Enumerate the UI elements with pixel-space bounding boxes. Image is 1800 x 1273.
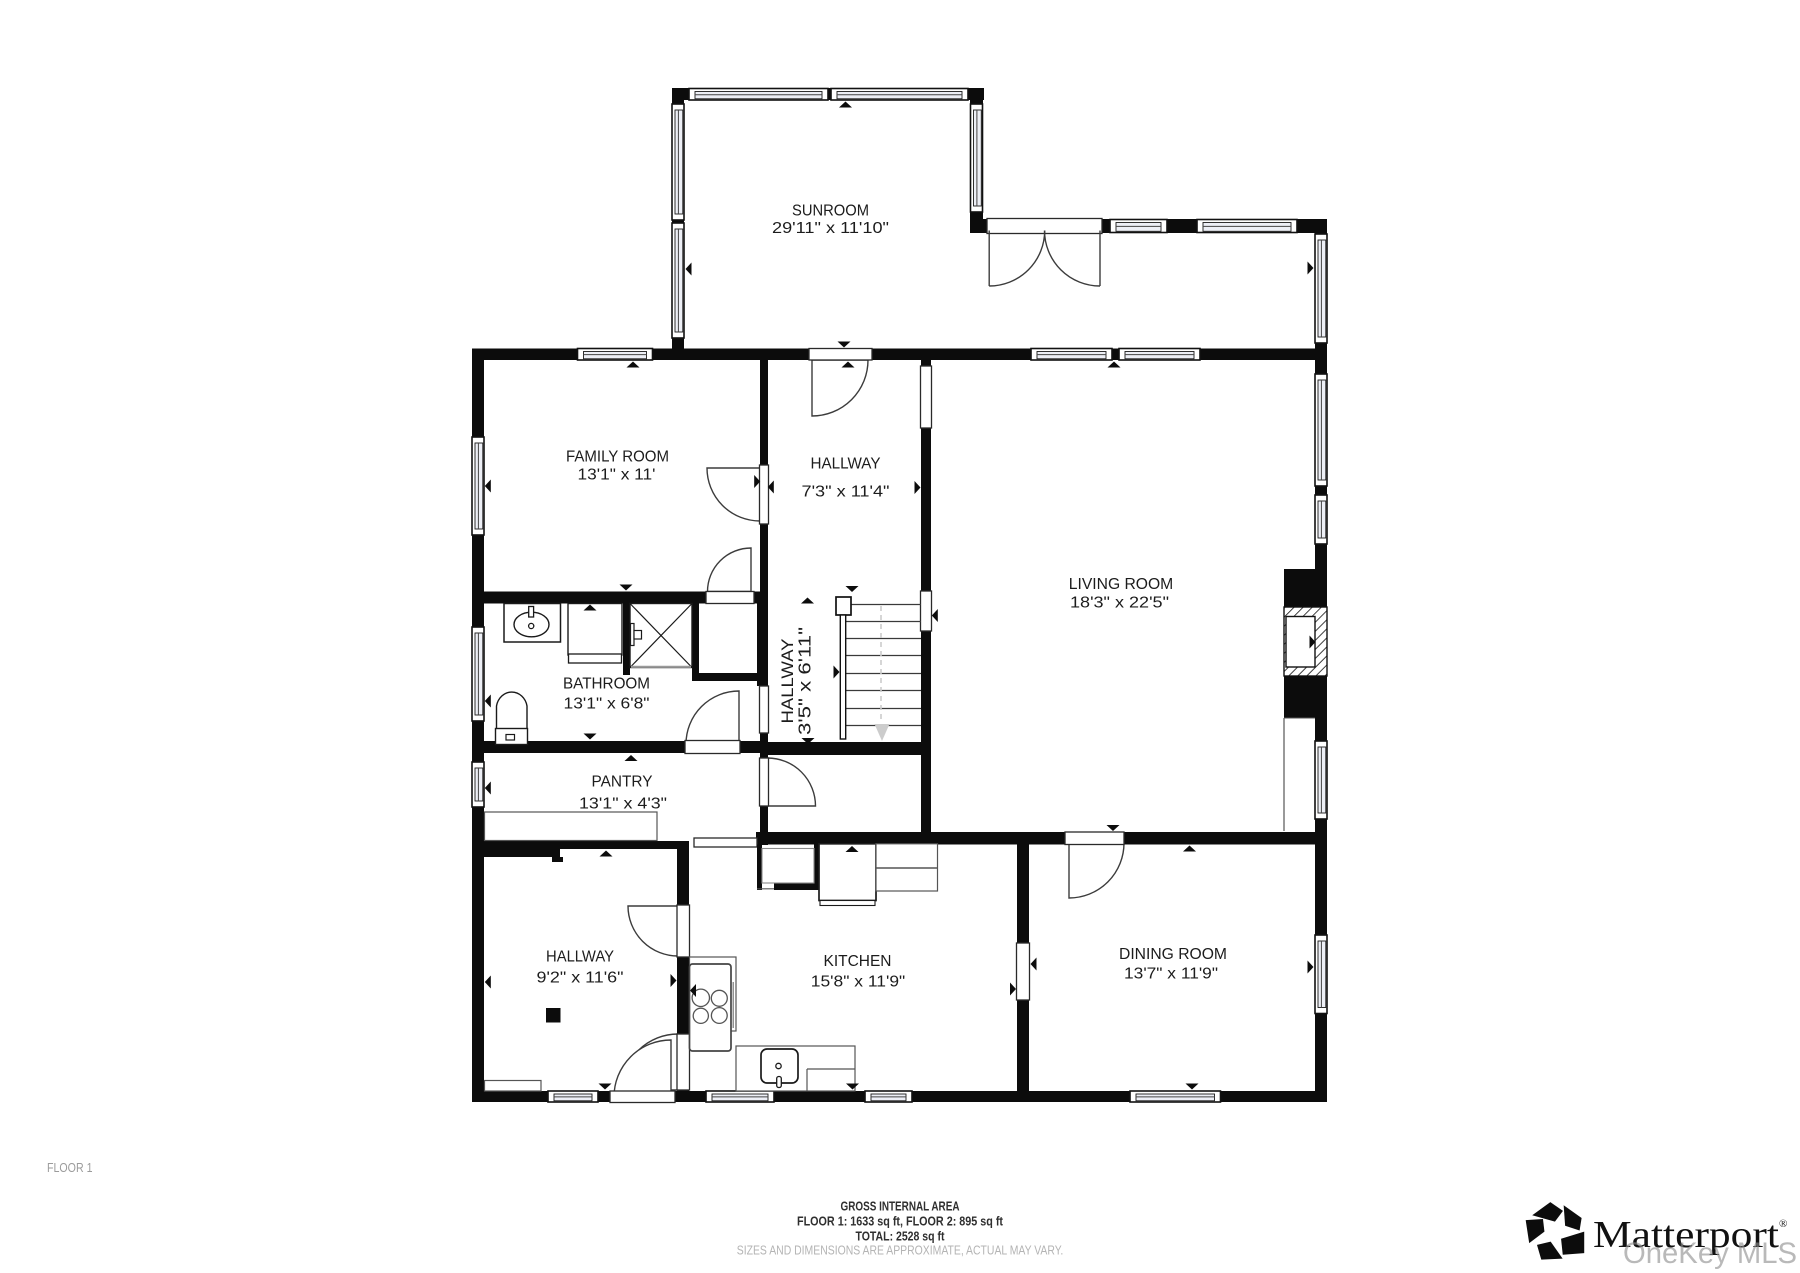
svg-text:7'3" x 11'4": 7'3" x 11'4" xyxy=(802,484,890,501)
svg-text:FAMILY ROOM: FAMILY ROOM xyxy=(566,449,669,466)
svg-text:13'1" x 6'8": 13'1" x 6'8" xyxy=(564,696,650,713)
svg-text:13'1" x 11': 13'1" x 11' xyxy=(578,467,656,484)
svg-text:SIZES AND DIMENSIONS ARE APPRO: SIZES AND DIMENSIONS ARE APPROXIMATE, AC… xyxy=(737,1243,1064,1258)
svg-text:TOTAL: 2528 sq ft: TOTAL: 2528 sq ft xyxy=(856,1229,945,1244)
svg-text:LIVING ROOM: LIVING ROOM xyxy=(1069,576,1174,593)
svg-text:BATHROOM: BATHROOM xyxy=(563,676,650,693)
svg-text:FLOOR 1: FLOOR 1 xyxy=(47,1160,93,1175)
svg-text:9'2" x 11'6": 9'2" x 11'6" xyxy=(537,970,624,987)
svg-text:29'11" x 11'10": 29'11" x 11'10" xyxy=(772,220,889,237)
svg-text:DINING ROOM: DINING ROOM xyxy=(1119,946,1227,963)
svg-text:®: ® xyxy=(1779,1218,1787,1230)
svg-text:PANTRY: PANTRY xyxy=(592,774,653,791)
svg-text:OneKey MLS: OneKey MLS xyxy=(1623,1237,1797,1270)
svg-text:HALLWAY: HALLWAY xyxy=(546,949,614,966)
svg-text:3'5" x 6'11": 3'5" x 6'11" xyxy=(795,627,815,735)
svg-text:13'1" x 4'3": 13'1" x 4'3" xyxy=(579,796,667,813)
svg-text:13'7" x 11'9": 13'7" x 11'9" xyxy=(1124,966,1218,983)
svg-text:HALLWAY: HALLWAY xyxy=(811,456,881,473)
svg-text:GROSS INTERNAL AREA: GROSS INTERNAL AREA xyxy=(841,1199,960,1214)
svg-text:SUNROOM: SUNROOM xyxy=(792,203,869,220)
svg-text:KITCHEN: KITCHEN xyxy=(824,953,892,970)
svg-text:FLOOR 1: 1633 sq ft, FLOOR 2:: FLOOR 1: 1633 sq ft, FLOOR 2: 895 sq ft xyxy=(797,1214,1003,1229)
svg-text:18'3" x 22'5": 18'3" x 22'5" xyxy=(1070,595,1169,612)
svg-text:15'8" x 11'9": 15'8" x 11'9" xyxy=(811,974,906,991)
